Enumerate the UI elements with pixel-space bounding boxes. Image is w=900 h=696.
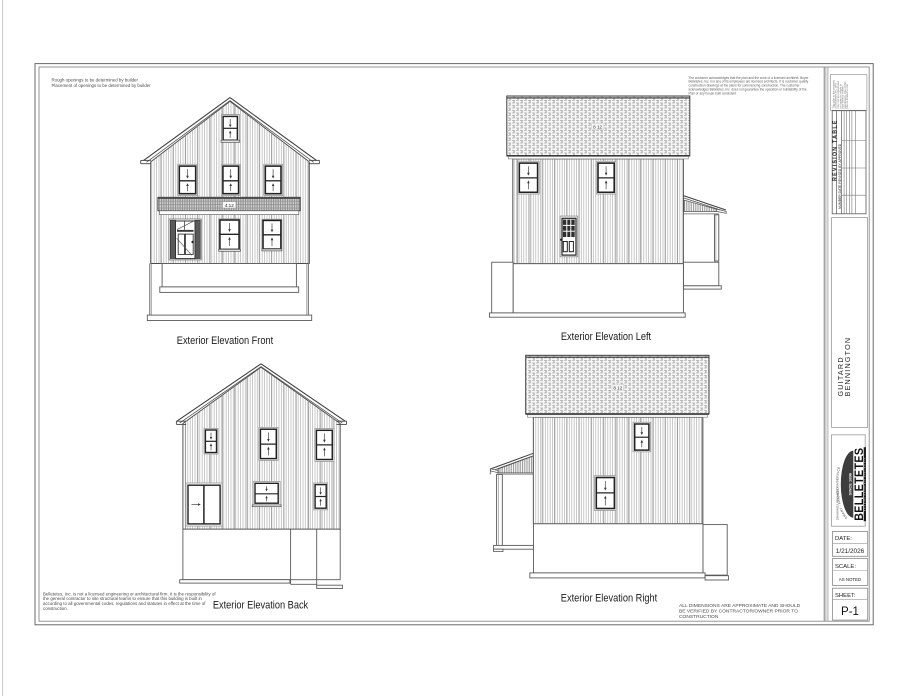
svg-text:CONSTRUCTION: CONSTRUCTION	[679, 614, 719, 620]
svg-text:plan is limited to one: plan is limited to one	[845, 84, 849, 109]
svg-text:Exterior Elevation Back: Exterior Elevation Back	[213, 600, 309, 612]
svg-text:8 12: 8 12	[593, 124, 602, 129]
svg-text:8 12: 8 12	[613, 386, 622, 391]
svg-text:Rough openings to be determine: Rough openings to be determined by build…	[52, 78, 139, 83]
svg-text:Placement of openings to be de: Placement of openings to be determined b…	[52, 83, 152, 88]
svg-text:BENNINGTON: BENNINGTON	[843, 337, 852, 397]
svg-text:SCALE:: SCALE:	[835, 564, 856, 570]
svg-text:1/21/2026: 1/21/2026	[836, 548, 865, 555]
svg-text:BUILDING MATERIALS SPECIALISTS: BUILDING MATERIALS SPECIALISTS	[864, 457, 867, 511]
svg-text:SHEET:: SHEET:	[835, 593, 856, 599]
svg-text:4:12: 4:12	[225, 203, 234, 208]
svg-text:NUMBER DATE REVISED BY: NUMBER DATE REVISED BY APPROVED	[838, 143, 842, 209]
svg-text:DATE:: DATE:	[835, 536, 852, 542]
svg-text:Exterior Elevation Front: Exterior Elevation Front	[177, 335, 274, 347]
svg-text:AS NOTED: AS NOTED	[839, 577, 861, 582]
svg-text:SINCE 1898: SINCE 1898	[848, 472, 853, 495]
svg-text:Exterior Elevation Right: Exterior Elevation Right	[561, 593, 658, 605]
svg-text:P-1: P-1	[841, 606, 859, 618]
svg-text:BE VERIFIED BY CONTRACTOR/OWNE: BE VERIFIED BY CONTRACTOR/OWNER PRIOR TO	[679, 608, 798, 614]
svg-text:ALL DIMENSIONS ARE APPROXIMATE: ALL DIMENSIONS ARE APPROXIMATE AND SHOUL…	[679, 603, 801, 609]
svg-text:construction.: construction.	[43, 606, 68, 611]
svg-text:Exterior Elevation Left: Exterior Elevation Left	[561, 331, 651, 343]
svg-text:Plan or any house built consis: Plan or any house built consistent	[689, 91, 737, 95]
